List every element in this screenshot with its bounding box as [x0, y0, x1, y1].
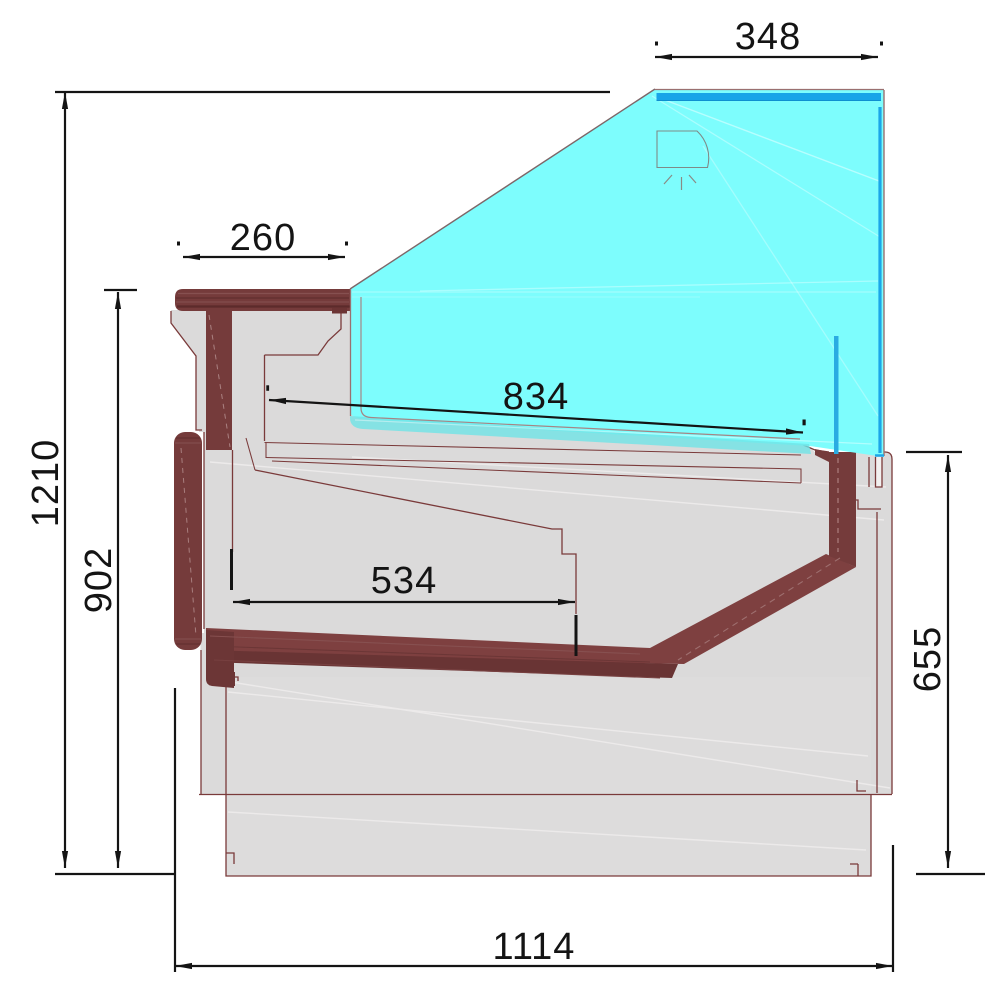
- svg-text:348: 348: [735, 16, 801, 58]
- svg-text:834: 834: [503, 376, 569, 418]
- svg-text:1210: 1210: [25, 439, 67, 528]
- svg-text:1114: 1114: [493, 926, 576, 968]
- svg-text:902: 902: [78, 547, 120, 613]
- svg-text:655: 655: [907, 626, 949, 692]
- svg-text:534: 534: [371, 560, 437, 602]
- svg-text:260: 260: [230, 217, 296, 259]
